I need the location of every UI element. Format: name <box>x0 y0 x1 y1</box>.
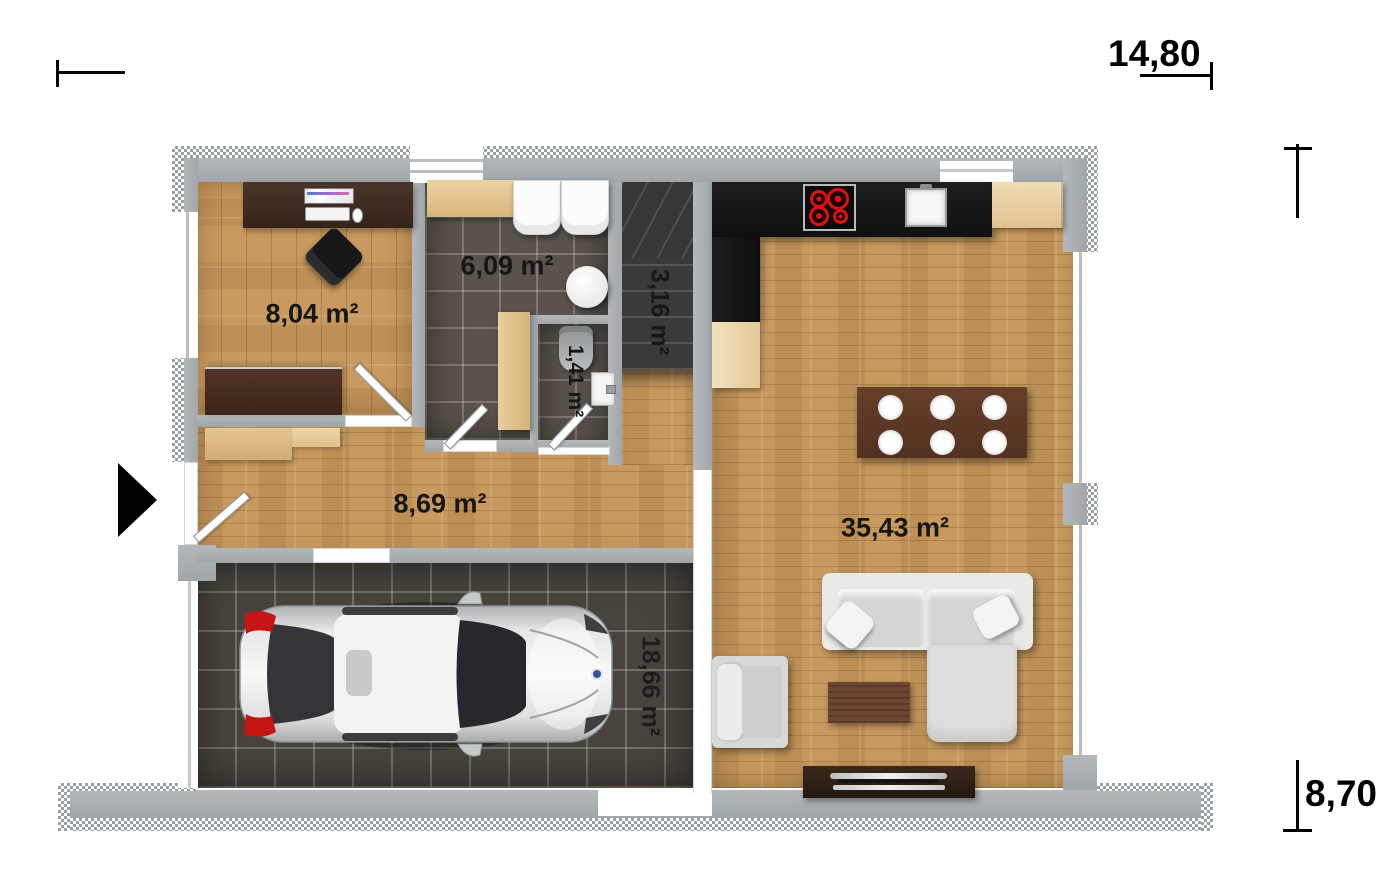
staircase-landing <box>622 370 693 465</box>
dim-line-height-start <box>1296 144 1299 218</box>
desk-keyboard <box>305 207 350 221</box>
room-label-hallway: 8,69 m² <box>393 489 486 520</box>
bathroom-basin <box>566 266 608 308</box>
wall-stairs-living <box>693 182 712 470</box>
wall-wc-left <box>530 315 538 447</box>
dim-tick-height-start <box>1284 147 1312 150</box>
wall-hatch-left-b <box>172 356 184 462</box>
window-office <box>172 212 198 358</box>
wall-hatch-bottom-right-top <box>1097 783 1213 791</box>
room-label-office: 8,04 m² <box>265 299 358 330</box>
tv-stand <box>803 766 975 798</box>
wall-office-bathroom <box>412 182 425 427</box>
dim-tick-height-end <box>1283 829 1312 832</box>
window-garage <box>178 581 198 788</box>
room-label-living: 35,43 m² <box>841 513 949 544</box>
wall-hatch-bottom-left-top <box>58 783 196 791</box>
wall-hatch-cap-right <box>1201 783 1213 831</box>
wall-hatch-bottom <box>58 818 1213 831</box>
kitchen-cabinet-right <box>992 182 1063 228</box>
staircase-winders <box>622 182 693 258</box>
desk-mouse <box>352 208 363 223</box>
wall-right-corner <box>1063 755 1097 793</box>
car <box>234 590 619 758</box>
wall-garage-living <box>693 470 712 793</box>
wall-hall-garage-a <box>196 548 313 563</box>
dim-tick-width-start <box>56 60 59 87</box>
wall-wc-top <box>530 315 610 324</box>
wc-sink <box>591 372 615 406</box>
kitchen-cabinet-left <box>712 322 760 388</box>
wall-left-a <box>184 158 198 214</box>
window-top-kitchen <box>940 161 1013 183</box>
kitchen-counter-side <box>712 237 760 322</box>
dryer <box>561 180 609 235</box>
window-living-right-lower <box>1073 525 1097 755</box>
room-label-staircase: 3,16 m² <box>645 269 674 355</box>
room-label-wc: 1,41 m² <box>563 345 587 417</box>
dim-line-height-end <box>1296 760 1299 832</box>
wall-hatch-left-a <box>172 146 184 216</box>
dim-line-width-start <box>57 71 125 74</box>
room-label-bathroom: 6,09 m² <box>460 251 553 282</box>
desk-monitor <box>304 188 354 204</box>
floor-plan: 8,04 m² 6,09 m² 1,41 m² 3,16 m² 8,69 m² … <box>0 0 1400 875</box>
wall-bath-hall-a <box>425 440 443 452</box>
washing-machine <box>513 180 561 235</box>
wall-right-a <box>1063 158 1087 252</box>
garage-wall-gap <box>598 790 712 816</box>
kitchen-faucet <box>920 184 932 189</box>
room-label-garage: 18,66 m² <box>636 636 665 736</box>
cooktop <box>803 184 856 231</box>
kitchen-sink <box>905 188 947 227</box>
dim-tick-width-end <box>1210 62 1213 90</box>
armchair <box>712 656 788 748</box>
wall-left-b <box>184 356 198 462</box>
dining-table <box>857 387 1027 458</box>
bathroom-side-counter <box>498 312 530 430</box>
dim-line-width-end <box>1140 74 1213 77</box>
bathroom-counter <box>427 180 513 217</box>
dim-label-width: 14,80 <box>1108 33 1201 75</box>
hall-bench <box>205 428 292 460</box>
window-living-right-upper <box>1073 252 1097 483</box>
window-top-bathroom <box>410 146 483 183</box>
garage-door-opening <box>313 548 390 563</box>
wall-bath-stairs <box>608 182 622 465</box>
wall-hatch-cap-left <box>58 783 70 831</box>
dim-label-height: 8,70 <box>1305 773 1377 815</box>
sofa-chaise <box>927 645 1017 742</box>
coffee-table <box>828 682 910 723</box>
wall-hall-garage-b <box>390 548 695 563</box>
office-wardrobe <box>205 367 342 415</box>
wall-right-b <box>1063 483 1087 525</box>
entrance-arrow-icon <box>118 463 157 537</box>
wall-office-hall <box>196 415 345 427</box>
wc-door-opening <box>538 447 610 455</box>
hall-shelf <box>292 428 340 447</box>
office-desk <box>243 182 413 228</box>
